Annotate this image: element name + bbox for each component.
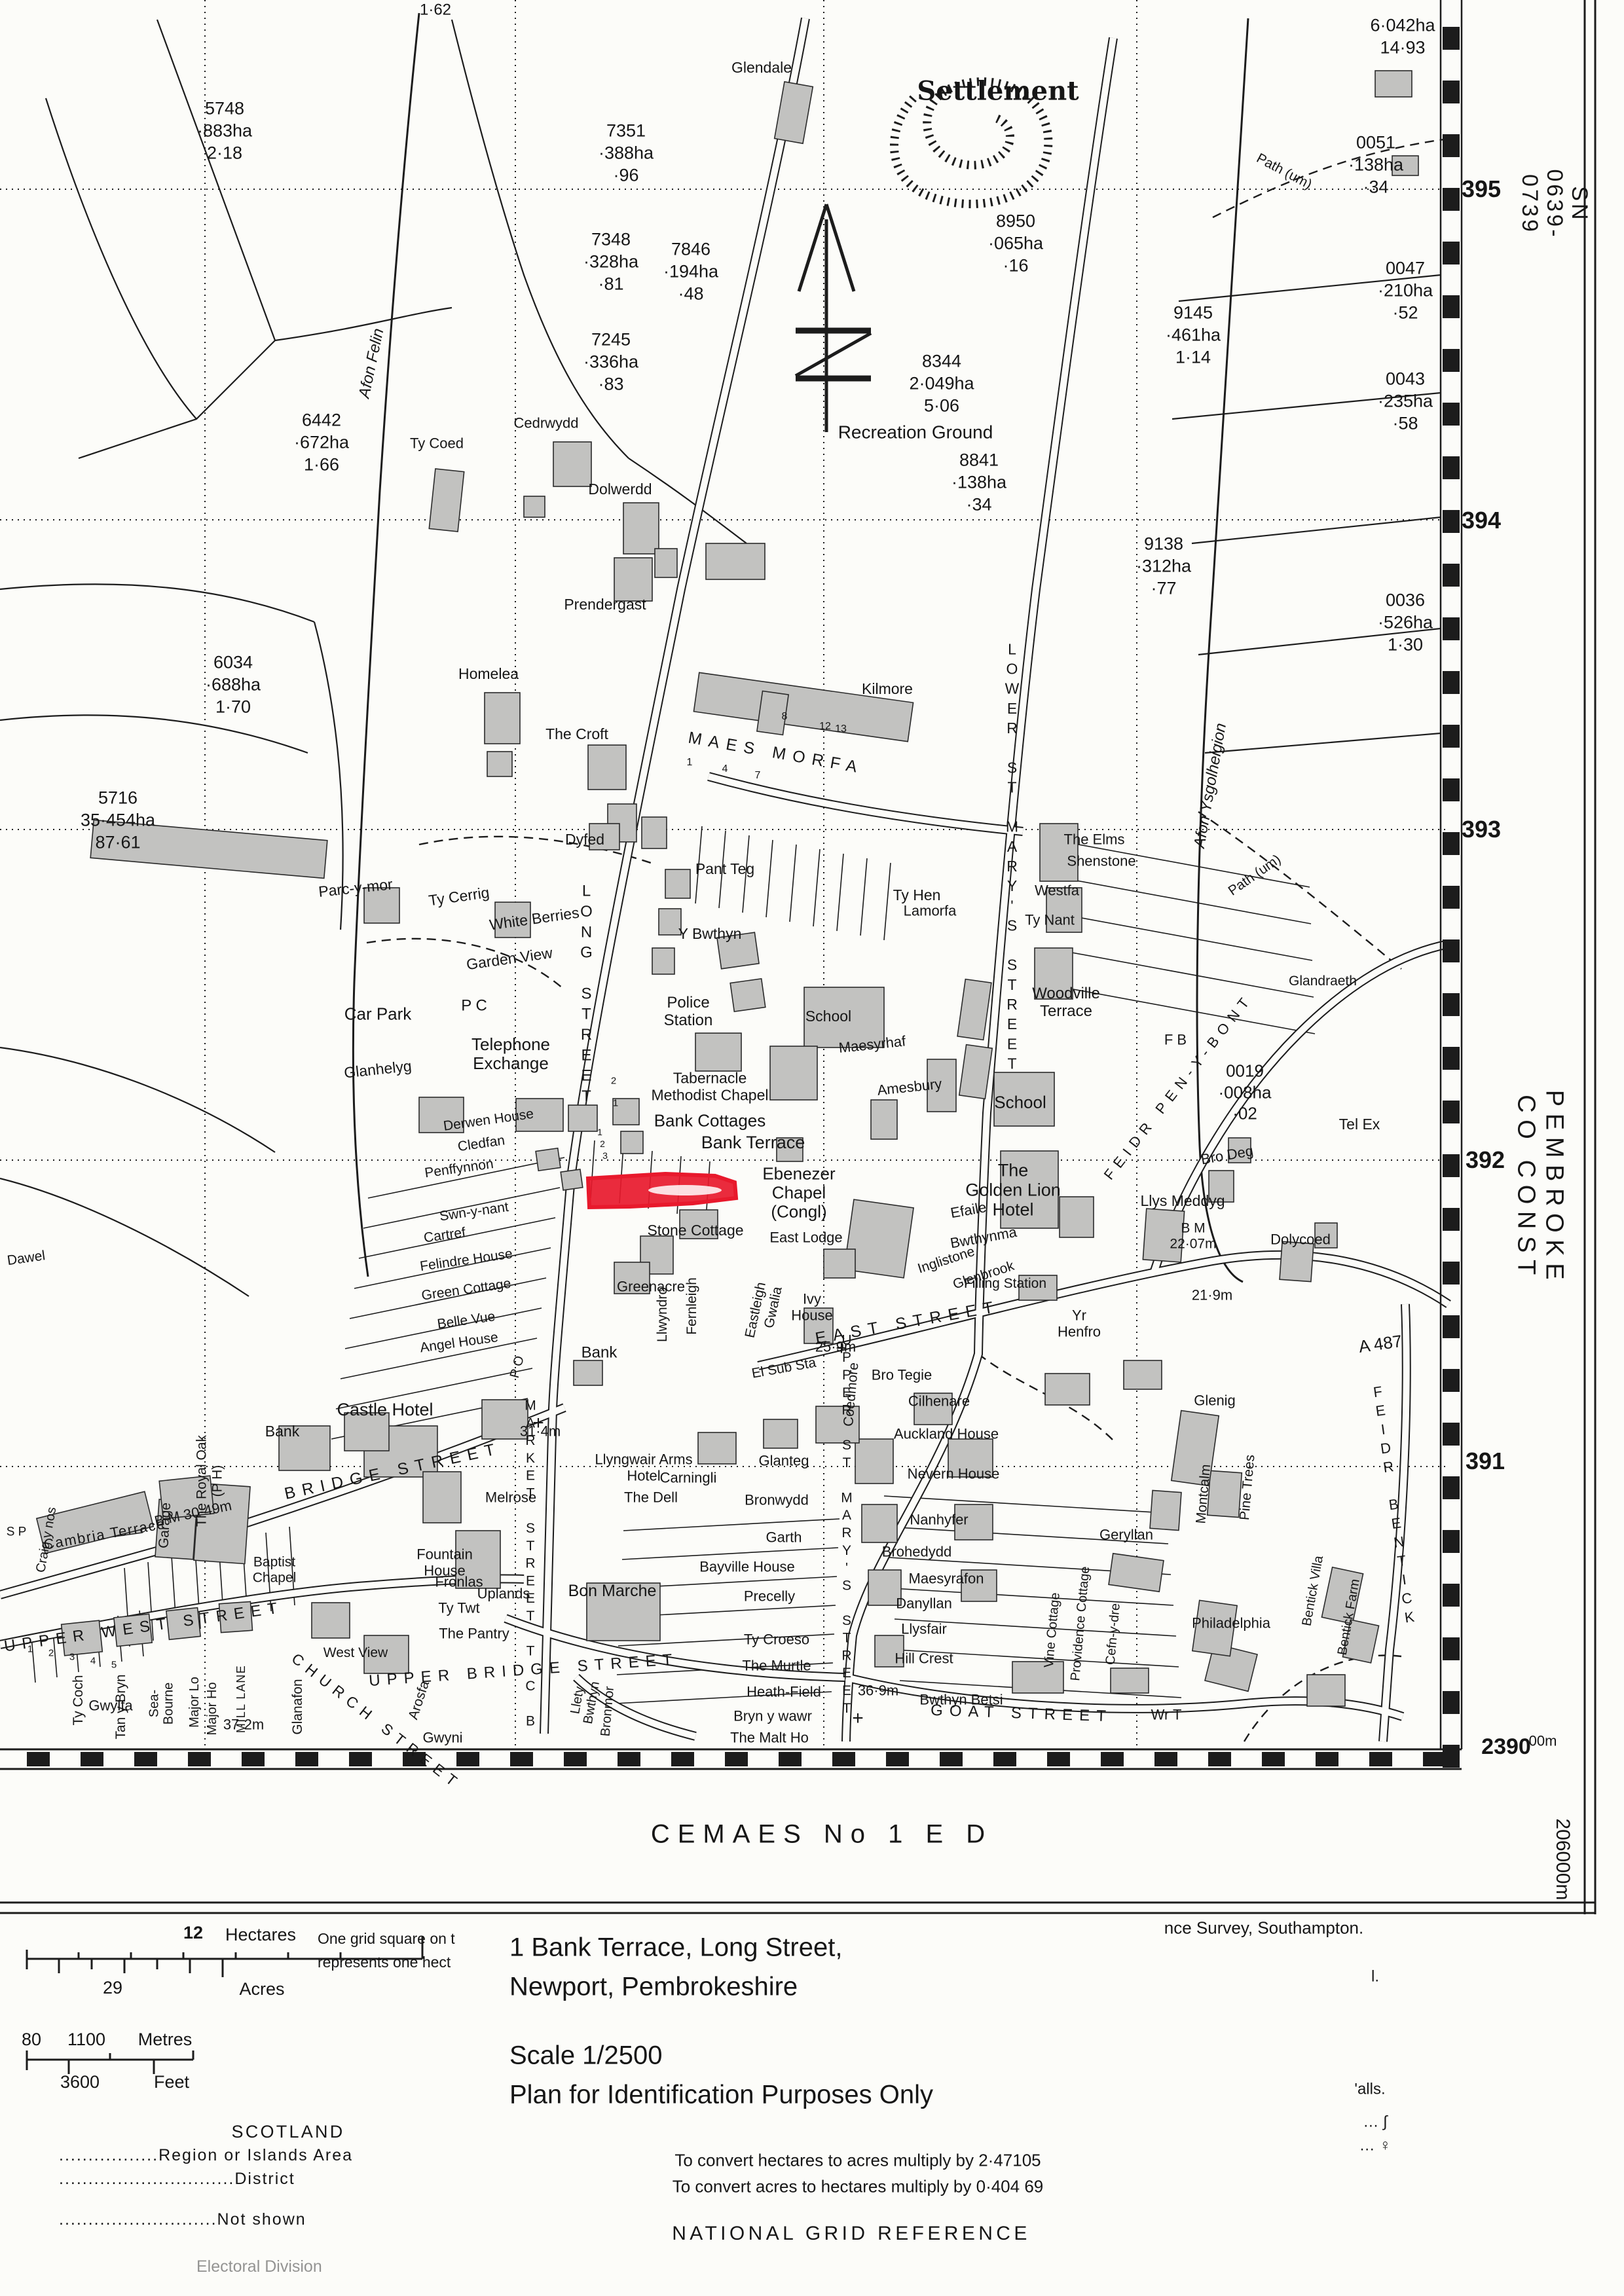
building bbox=[1019, 1275, 1057, 1300]
field-boundary bbox=[1205, 733, 1441, 753]
plot-division-line bbox=[837, 854, 843, 931]
building bbox=[655, 549, 677, 577]
plot-division-line bbox=[350, 1278, 546, 1319]
building bbox=[90, 820, 327, 879]
border-band-block bbox=[1101, 1752, 1124, 1766]
building bbox=[957, 979, 991, 1040]
road-casing bbox=[506, 1618, 845, 1677]
boundary-band-block bbox=[1443, 1637, 1460, 1660]
border-band-block bbox=[1154, 1752, 1177, 1766]
plot-division-line bbox=[884, 863, 891, 940]
plot-division-line bbox=[813, 849, 820, 926]
road-surface bbox=[506, 1618, 845, 1677]
boundary-band-block bbox=[1443, 1154, 1460, 1177]
building bbox=[948, 1439, 993, 1477]
building bbox=[364, 888, 399, 923]
border-band-block bbox=[295, 1752, 318, 1766]
boundary-band-block bbox=[1443, 1369, 1460, 1392]
boundary-band-block bbox=[1443, 510, 1460, 533]
building bbox=[588, 745, 626, 790]
plot-division-line bbox=[790, 845, 796, 922]
border-band-block bbox=[1208, 1752, 1231, 1766]
building bbox=[614, 1262, 650, 1294]
building bbox=[482, 1400, 528, 1439]
building bbox=[855, 1439, 893, 1484]
building bbox=[114, 1614, 152, 1646]
border-band-block bbox=[1316, 1752, 1338, 1766]
border-band-block bbox=[1423, 1752, 1446, 1766]
boundary-band-block bbox=[1443, 1208, 1460, 1231]
building bbox=[1209, 1171, 1234, 1202]
boundary-band-block bbox=[1443, 1315, 1460, 1338]
boundary-band-block bbox=[1443, 939, 1460, 962]
boundary-band-block bbox=[1443, 188, 1460, 211]
plot-division-line bbox=[895, 1619, 1176, 1636]
building bbox=[961, 1570, 997, 1601]
field-boundary bbox=[46, 98, 196, 419]
scalebar-hectares bbox=[27, 1937, 422, 1977]
field-boundary bbox=[79, 20, 275, 458]
boundary-band-block bbox=[1443, 1423, 1460, 1446]
plot-division-line bbox=[1065, 951, 1314, 997]
border-band-block bbox=[349, 1752, 372, 1766]
field-boundary bbox=[452, 20, 629, 458]
building bbox=[1045, 1374, 1090, 1405]
building bbox=[166, 1608, 200, 1640]
boundary-band-block bbox=[1443, 993, 1460, 1016]
boundary-band-block bbox=[1443, 778, 1460, 801]
building bbox=[429, 469, 464, 532]
building bbox=[695, 1033, 741, 1071]
building bbox=[764, 1419, 798, 1448]
decor-symbol bbox=[894, 82, 1048, 204]
field-boundary bbox=[1192, 517, 1441, 543]
plot-division-line bbox=[860, 858, 867, 936]
border-band-block bbox=[779, 1752, 802, 1766]
map-canvas bbox=[0, 0, 1624, 2296]
building bbox=[1060, 1197, 1094, 1237]
border-band-block bbox=[886, 1752, 909, 1766]
track-dashed bbox=[1213, 139, 1449, 217]
plot-division-line bbox=[616, 1692, 832, 1704]
plot-division-line bbox=[884, 1496, 1166, 1513]
boundary-band-block bbox=[1443, 1476, 1460, 1499]
building bbox=[914, 1393, 952, 1425]
boundary-band-block bbox=[1443, 832, 1460, 855]
boundary-band-block bbox=[1443, 295, 1460, 318]
building bbox=[456, 1531, 500, 1588]
decor-symbol bbox=[826, 204, 854, 291]
border-band-block bbox=[564, 1752, 587, 1766]
field-boundary bbox=[0, 1048, 275, 1152]
building bbox=[1143, 1209, 1184, 1262]
building bbox=[1208, 1470, 1242, 1517]
plot-division-line bbox=[341, 1338, 537, 1379]
boundary-band-block bbox=[1443, 886, 1460, 909]
building bbox=[775, 82, 813, 143]
boundary-band-block bbox=[1443, 1530, 1460, 1553]
building bbox=[623, 503, 659, 554]
building bbox=[553, 442, 591, 486]
building bbox=[1111, 1668, 1149, 1693]
building bbox=[1040, 824, 1078, 881]
border-band-block bbox=[940, 1752, 963, 1766]
building bbox=[613, 1099, 639, 1125]
plot-division-line bbox=[622, 1548, 838, 1559]
building bbox=[37, 1491, 153, 1553]
border-band-block bbox=[403, 1752, 426, 1766]
field-boundary bbox=[314, 622, 343, 930]
plot-division-line bbox=[887, 1527, 1168, 1544]
building bbox=[659, 909, 681, 935]
building bbox=[1035, 948, 1073, 999]
building bbox=[614, 558, 652, 601]
border-band-block bbox=[993, 1752, 1016, 1766]
border-band-block bbox=[510, 1752, 533, 1766]
border-band-block bbox=[1262, 1752, 1285, 1766]
building bbox=[159, 1476, 214, 1519]
building bbox=[1321, 1567, 1363, 1624]
building bbox=[862, 1504, 897, 1542]
building bbox=[485, 693, 520, 744]
os-map-sheet: SN 0639-0739 PEMBROKE CO CONST 2390 00m … bbox=[0, 0, 1624, 2296]
building bbox=[1150, 1491, 1181, 1531]
border-band-block bbox=[242, 1752, 265, 1766]
building bbox=[423, 1472, 461, 1523]
border-band-block bbox=[1369, 1752, 1392, 1766]
building bbox=[419, 1097, 464, 1133]
field-boundary bbox=[0, 584, 314, 622]
building bbox=[495, 902, 530, 938]
building bbox=[824, 1249, 855, 1278]
building bbox=[574, 1360, 602, 1385]
building bbox=[364, 1635, 409, 1673]
building bbox=[717, 932, 759, 969]
boundary-band-block bbox=[1443, 242, 1460, 264]
plot-division-line bbox=[359, 1218, 555, 1258]
river-line bbox=[353, 13, 419, 1277]
building bbox=[1280, 1241, 1314, 1281]
building bbox=[706, 543, 765, 579]
building bbox=[62, 1620, 103, 1656]
boundary-band-block bbox=[1443, 1584, 1460, 1607]
building bbox=[1392, 156, 1418, 175]
track-dashed bbox=[367, 939, 563, 989]
decor-symbol bbox=[799, 204, 826, 291]
boundary-band-block bbox=[1443, 134, 1460, 157]
border-band-block bbox=[618, 1752, 640, 1766]
building bbox=[804, 1308, 833, 1343]
boundary-band-block bbox=[1443, 671, 1460, 694]
road-casing bbox=[576, 1677, 695, 1736]
plot-division-line bbox=[719, 831, 726, 908]
building bbox=[770, 1046, 817, 1100]
building bbox=[589, 824, 619, 850]
plot-division-line bbox=[345, 1308, 542, 1349]
field-boundary bbox=[0, 715, 308, 753]
building bbox=[1342, 1620, 1378, 1663]
building bbox=[680, 1210, 718, 1239]
building bbox=[524, 496, 545, 517]
plot-division-line bbox=[1063, 915, 1312, 960]
plot-division-line bbox=[623, 1519, 840, 1531]
boundary-band-block bbox=[1443, 1047, 1460, 1070]
plot-division-line bbox=[1066, 988, 1315, 1034]
building bbox=[994, 1072, 1054, 1126]
field-boundary bbox=[1198, 629, 1441, 655]
boundary-band-block bbox=[1443, 725, 1460, 748]
building bbox=[1315, 1223, 1337, 1248]
building bbox=[642, 817, 667, 848]
border-band-block bbox=[725, 1752, 748, 1766]
border-band-block bbox=[456, 1752, 479, 1766]
border-band-block bbox=[27, 1752, 50, 1766]
decor-symbol bbox=[796, 333, 871, 376]
building bbox=[652, 948, 674, 974]
building bbox=[561, 1169, 583, 1190]
boundary-band-block bbox=[1443, 349, 1460, 372]
building bbox=[279, 1426, 330, 1470]
building bbox=[1375, 71, 1412, 97]
building bbox=[1012, 1662, 1063, 1693]
boundary-band-block bbox=[1443, 617, 1460, 640]
field-boundary bbox=[275, 308, 452, 340]
building bbox=[777, 1138, 803, 1161]
plot-division-line bbox=[354, 1248, 551, 1288]
boundary-band-block bbox=[1443, 1691, 1460, 1714]
building bbox=[868, 1570, 901, 1605]
building bbox=[875, 1635, 904, 1667]
building bbox=[1124, 1360, 1162, 1389]
building bbox=[219, 1601, 253, 1632]
boundary-band-block bbox=[1443, 1101, 1460, 1123]
building bbox=[757, 691, 788, 735]
plot-division-line bbox=[695, 826, 702, 903]
field-boundary bbox=[1179, 275, 1441, 301]
building bbox=[804, 987, 884, 1048]
border-band-block bbox=[134, 1752, 157, 1766]
scalebar-metres bbox=[27, 2050, 193, 2074]
building bbox=[1109, 1554, 1164, 1592]
plot-division-line bbox=[368, 1157, 564, 1198]
plot-division-line bbox=[363, 1188, 560, 1228]
boundary-band-block bbox=[1443, 403, 1460, 426]
building bbox=[1001, 1151, 1058, 1228]
building bbox=[568, 1105, 597, 1131]
boundary-band-block bbox=[1443, 27, 1460, 50]
plot-division-line bbox=[1062, 878, 1311, 924]
building bbox=[487, 752, 512, 776]
building bbox=[536, 1148, 561, 1171]
boundary-band-block bbox=[1443, 81, 1460, 103]
building bbox=[927, 1059, 956, 1112]
building bbox=[665, 869, 690, 898]
building bbox=[871, 1100, 897, 1139]
boundary-band-block bbox=[1443, 564, 1460, 587]
boundary-band-block bbox=[1443, 1262, 1460, 1285]
building bbox=[1307, 1675, 1345, 1706]
border-band-block bbox=[188, 1752, 211, 1766]
building bbox=[816, 1406, 859, 1443]
building bbox=[730, 979, 766, 1011]
plot-division-line bbox=[766, 840, 773, 917]
building bbox=[344, 1413, 389, 1451]
boundary-band-block bbox=[1443, 456, 1460, 479]
plot-division-line bbox=[31, 1637, 35, 1683]
building bbox=[312, 1603, 350, 1638]
building bbox=[1228, 1138, 1251, 1163]
border-band-block bbox=[671, 1752, 694, 1766]
plot-division-line bbox=[892, 1588, 1173, 1605]
field-boundary bbox=[0, 1178, 249, 1296]
border-band-block bbox=[1047, 1752, 1070, 1766]
building bbox=[621, 1131, 643, 1154]
field-boundary bbox=[1172, 393, 1441, 419]
border-band-block bbox=[81, 1752, 103, 1766]
border-band-block bbox=[832, 1752, 855, 1766]
highlighted-plot-streak bbox=[648, 1185, 722, 1195]
building bbox=[1192, 1600, 1237, 1656]
building bbox=[698, 1432, 736, 1464]
building bbox=[587, 1583, 660, 1641]
building bbox=[516, 1099, 563, 1131]
plot-division-line bbox=[743, 835, 749, 913]
building bbox=[955, 1504, 993, 1540]
building bbox=[1046, 888, 1082, 932]
building bbox=[693, 672, 913, 741]
